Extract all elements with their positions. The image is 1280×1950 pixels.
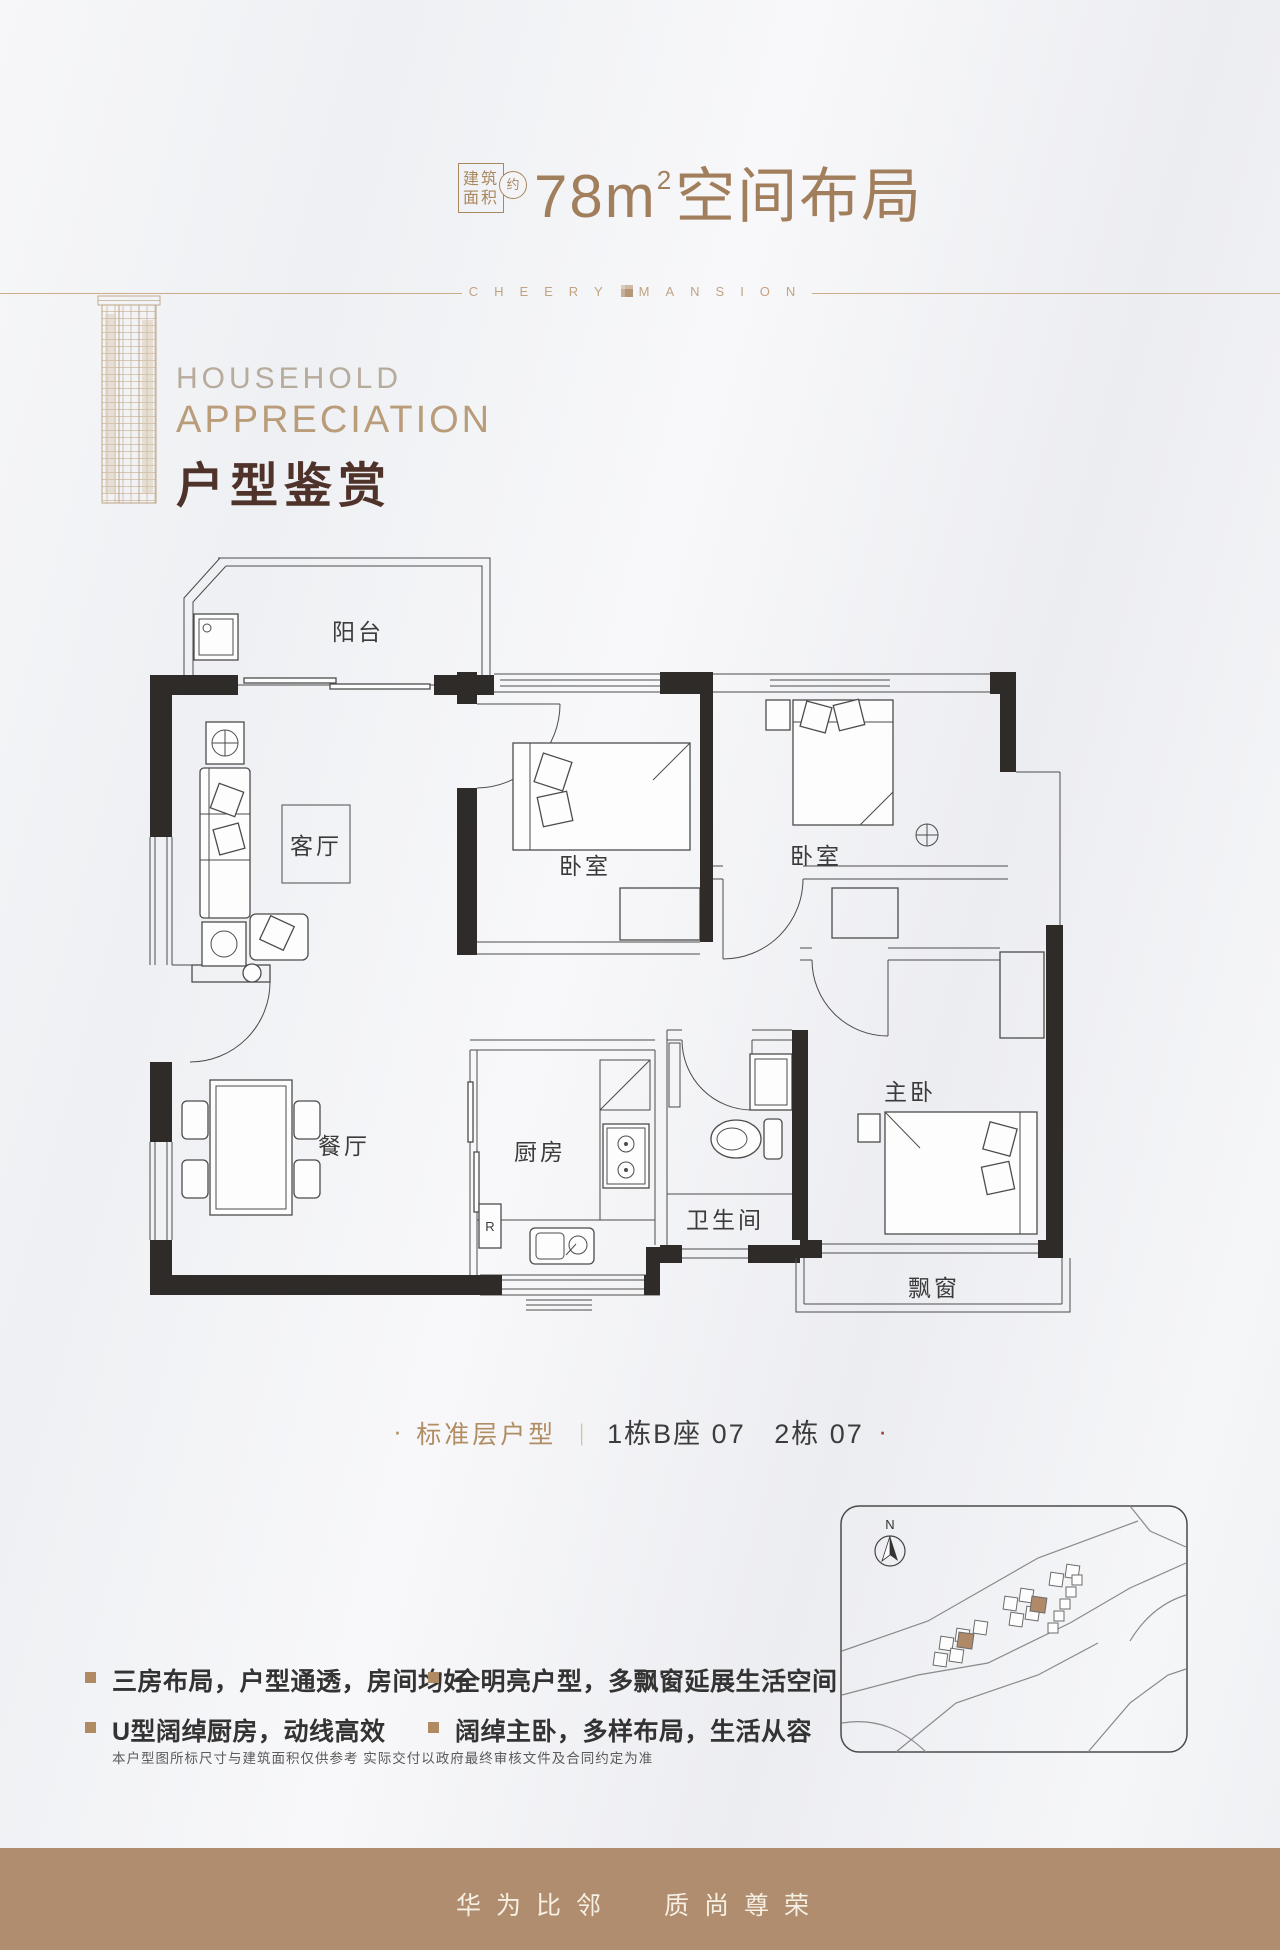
washbasin-icon [750, 1054, 792, 1110]
master-door-swing [812, 960, 888, 1036]
entry-door-swing [190, 982, 270, 1062]
dining-room: 餐厅 [182, 1080, 370, 1215]
bed-icon [793, 699, 893, 825]
brand-line: CHEERYMANSION [0, 284, 1280, 299]
dining-label: 餐厅 [318, 1133, 370, 1159]
bedroom2: 卧室 [713, 699, 1008, 959]
bullet-icon [85, 1672, 96, 1683]
nightstand-icon [858, 1114, 880, 1142]
bedroom1-label: 卧室 [559, 853, 611, 879]
living-room-label: 客厅 [290, 833, 342, 859]
slogan-right: 质尚尊荣 [664, 1892, 824, 1920]
brand-left: CHEERY [469, 284, 619, 299]
duct-icon [669, 1043, 680, 1107]
floor-plan: 客厅 卧室 [148, 552, 1098, 1352]
bedroom2-label: 卧室 [790, 843, 842, 869]
feature-item: U型阔绰厨房，动线高效 [85, 1712, 386, 1748]
section-eyebrow: HOUSEHOLD [176, 362, 402, 396]
fridge-label: R [485, 1219, 494, 1234]
sofa-icon [200, 768, 250, 918]
wardrobe-icon [620, 888, 700, 940]
highlighted-building-2 [1030, 1596, 1047, 1613]
title-suffix: 空间布局 [675, 163, 923, 230]
section-title-en: APPRECIATION [176, 399, 492, 442]
balcony-outline [184, 558, 490, 675]
north-compass-icon: N [875, 1517, 905, 1566]
toilet-icon [711, 1119, 782, 1159]
poster-page: 建筑 面积 约 78m2空间布局 CHEERYMANSION HOUSEHOLD… [0, 0, 1280, 1950]
nightstand-icon [766, 700, 790, 730]
bathroom-label: 卫生间 [686, 1207, 764, 1233]
sink-icon [530, 1228, 594, 1264]
tower-illustration-icon [95, 294, 163, 506]
hall-closet-icon [832, 888, 898, 938]
svg-text:N: N [885, 1517, 894, 1532]
roads [842, 1506, 1186, 1752]
bedroom2-door-swing [723, 879, 803, 959]
washing-machine-icon [194, 614, 238, 660]
bathroom: 卫生间 [655, 1030, 792, 1245]
area-superscript: 2 [657, 165, 673, 195]
balcony-label: 阳台 [332, 619, 384, 645]
caption-label: 标准层户型 [416, 1421, 556, 1449]
footer-bar: 华为比邻质尚尊荣 [0, 1848, 1280, 1950]
section-title-cn: 户型鉴赏 [176, 446, 392, 516]
feature-item: 三房布局，户型通透，房间均好 [85, 1662, 469, 1698]
approx-badge: 约 [499, 171, 527, 199]
bed-icon [513, 743, 690, 850]
slogan-left: 华为比邻 [456, 1892, 616, 1920]
kitchen-label: 厨房 [514, 1139, 566, 1165]
bullet-icon [428, 1722, 439, 1733]
master-closet-icon [1000, 952, 1044, 1038]
footer-slogan: 华为比邻质尚尊荣 [0, 1886, 1280, 1922]
area-label-line2: 面积 [459, 189, 503, 208]
kitchen: R 厨房 [468, 1040, 655, 1275]
fridge-icon: R [479, 1204, 501, 1248]
bedroom1: 卧室 [477, 743, 700, 954]
stove-icon [603, 1124, 649, 1188]
caption-lead-dot: · [393, 1416, 402, 1446]
dining-table-icon [182, 1080, 320, 1215]
area-value: 78m [534, 163, 657, 230]
bay-window-label: 飘窗 [908, 1275, 960, 1301]
fan-icon [206, 722, 244, 764]
feature-text: 阔绰主卧，多样布局，生活从容 [455, 1718, 812, 1746]
corner-cabinet-icon [600, 1060, 650, 1110]
bullet-icon [428, 1672, 439, 1683]
bedroom-divider-wall [700, 694, 713, 942]
area-label-box: 建筑 面积 [458, 163, 504, 213]
page-title: 78m2空间布局 [534, 148, 923, 235]
building-cluster-a [933, 1620, 988, 1667]
brand-right: MANSION [639, 284, 812, 299]
disclaimer-text: 本户型图所标尺寸与建筑面积仅供参考 实际交付以政府最终审核文件及合同约定为准 [112, 1747, 653, 1767]
bathroom-door-swing [682, 1040, 752, 1110]
highlighted-building-1 [957, 1632, 974, 1649]
caption-value: 1栋B座 07 2栋 07 [607, 1419, 864, 1449]
feature-text: 全明亮户型，多飘窗延展生活空间 [455, 1668, 838, 1696]
caption-end-dot: · [878, 1416, 887, 1446]
ceiling-unit-icon [916, 824, 938, 846]
side-table-icon [202, 922, 246, 966]
feature-text: 三房布局，户型通透，房间均好 [112, 1668, 469, 1696]
master-label: 主卧 [884, 1079, 936, 1105]
area-label-line1: 建筑 [459, 170, 503, 189]
feature-item: 全明亮户型，多飘窗延展生活空间 [428, 1662, 838, 1698]
caption-separator: ｜ [571, 1423, 593, 1448]
site-map: N [838, 1503, 1190, 1755]
armchair-icon [250, 914, 308, 960]
bullet-icon [85, 1722, 96, 1733]
bed-icon [885, 1112, 1037, 1234]
feature-item: 阔绰主卧，多样布局，生活从容 [428, 1712, 812, 1748]
feature-text: U型阔绰厨房，动线高效 [112, 1718, 386, 1746]
plan-caption: · 标准层户型 ｜ 1栋B座 07 2栋 07 · [0, 1412, 1280, 1451]
living-room: 客厅 [200, 672, 560, 966]
brand-logo-mark-icon [621, 285, 633, 297]
